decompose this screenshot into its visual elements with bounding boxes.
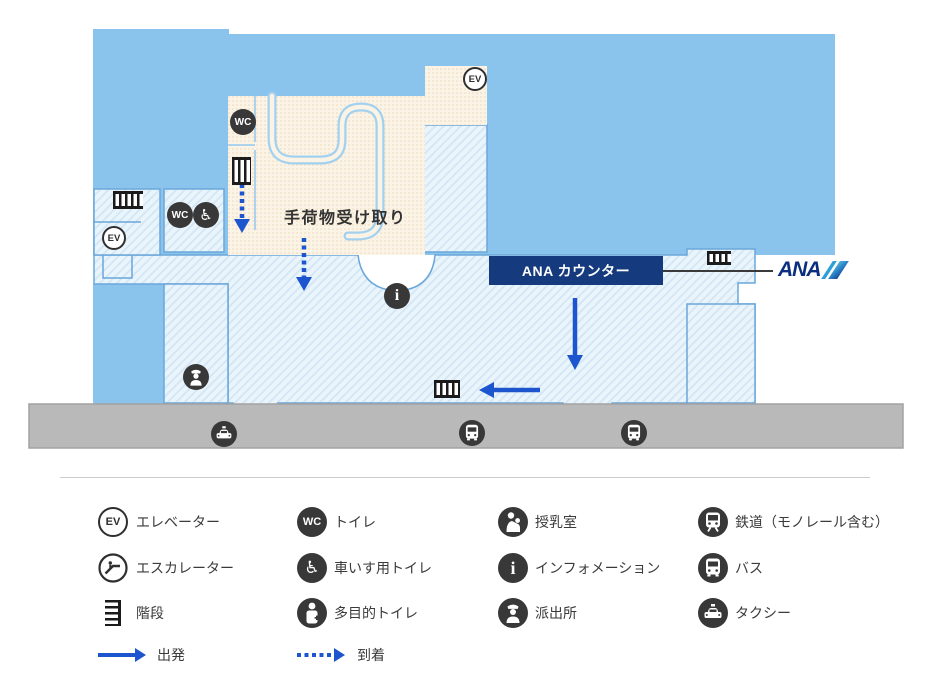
- ana-logo-text: ANA: [778, 259, 821, 281]
- airport-floor-map-page: ANA カウンター ANA 手荷物受け取り EV EV WC WC ♿ i EV…: [0, 0, 930, 692]
- legend-label-wheelchair-toilet: 車いす用トイレ: [334, 558, 432, 578]
- legend-label-escalator: エスカレーター: [136, 558, 234, 578]
- wheelchair-toilet-icon: ♿: [297, 553, 327, 583]
- legend-label-stairs: 階段: [136, 603, 164, 623]
- legend-label-departure: 出発: [157, 645, 185, 665]
- legend-label-elevator: エレベーター: [136, 512, 220, 532]
- nursing-room-icon: [498, 507, 528, 542]
- multipurpose-toilet-icon: [297, 598, 327, 633]
- elevator-icon: EV: [463, 67, 487, 91]
- legend-label-arrival: 到着: [357, 645, 385, 665]
- information-icon: i: [384, 283, 410, 309]
- stairs-icon: [113, 191, 143, 209]
- toilet-icon: WC: [230, 109, 256, 135]
- elevator-shaft-room: [423, 125, 487, 252]
- bus-icon: [621, 420, 647, 451]
- legend-label-bus: バス: [735, 558, 763, 578]
- legend-label-railway: 鉄道（モノレール含む）: [735, 512, 889, 532]
- elevator-icon: EV: [98, 507, 128, 537]
- stairs-icon: [232, 157, 251, 185]
- stairs-icon: [434, 380, 460, 398]
- building-block-column: [93, 284, 164, 404]
- bus-icon: [698, 553, 728, 588]
- bus-icon: [459, 420, 485, 451]
- escalator-icon: [98, 553, 128, 588]
- legend-label-toilet: トイレ: [334, 512, 376, 532]
- banner-connector-line: [663, 270, 773, 272]
- stairs-icon: [707, 251, 731, 265]
- information-icon: i: [498, 553, 528, 583]
- stairs-icon: [105, 600, 121, 626]
- taxi-icon: [698, 598, 728, 633]
- legend-label-nursing-room: 授乳室: [535, 512, 577, 532]
- taxi-icon: [211, 421, 237, 452]
- legend-label-multipurpose-toilet: 多目的トイレ: [334, 603, 418, 623]
- elevator-icon: EV: [102, 226, 126, 250]
- railway-icon: [698, 507, 728, 542]
- legend-label-police-box: 派出所: [535, 603, 577, 623]
- arrival-arrow-icon: [297, 647, 345, 663]
- departure-arrow-icon: [98, 647, 146, 663]
- legend-divider: [60, 477, 870, 478]
- right-side-room: [687, 304, 755, 403]
- legend-label-information: インフォメーション: [535, 558, 660, 578]
- ana-counter-banner: ANA カウンター: [489, 256, 663, 285]
- police-box-icon: [498, 598, 528, 633]
- ana-logo: ANA: [778, 258, 843, 282]
- toilet-icon: WC: [297, 507, 327, 537]
- legend-label-taxi: タクシー: [735, 603, 791, 623]
- toilet-icon: WC: [167, 202, 193, 228]
- ana-counter-label: ANA カウンター: [522, 261, 630, 281]
- baggage-claim-label: 手荷物受け取り: [284, 204, 407, 228]
- police-box-icon: [183, 364, 209, 395]
- wheelchair-toilet-icon: ♿: [193, 202, 219, 228]
